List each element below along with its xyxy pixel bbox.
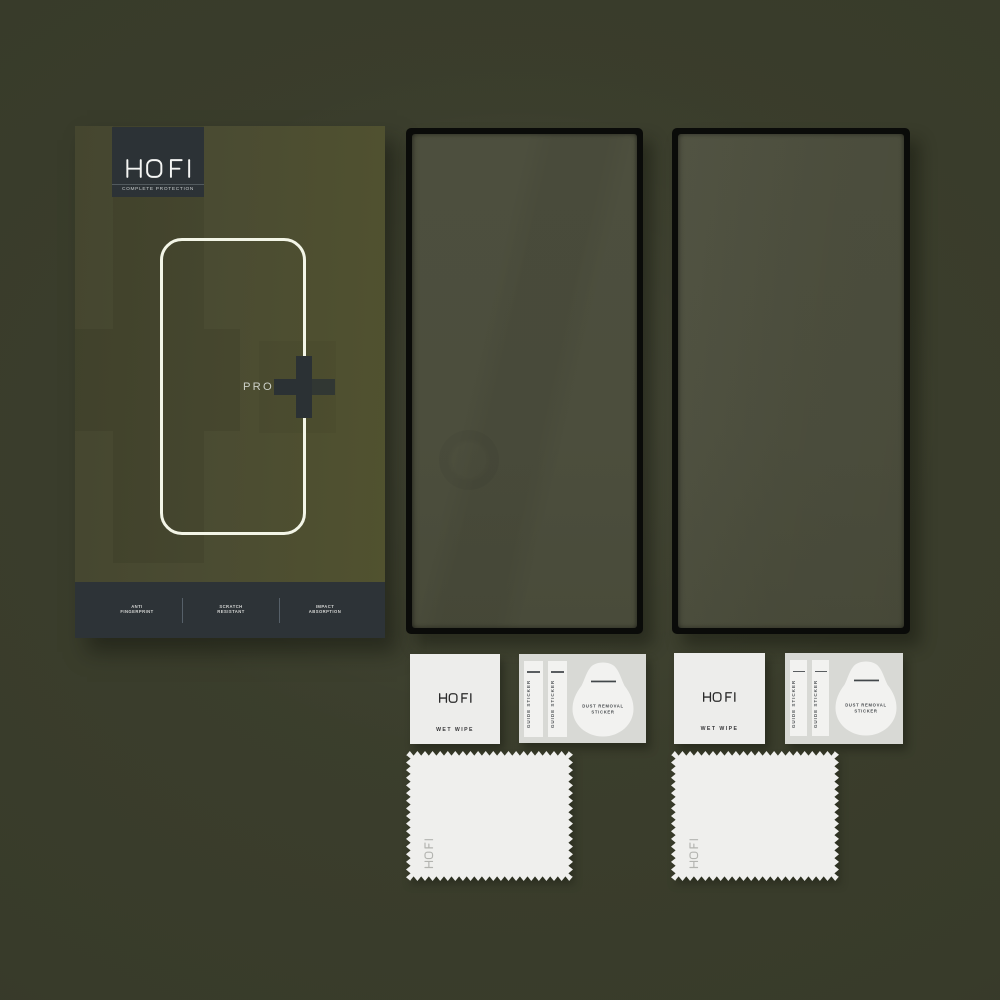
svg-text:STICKER: STICKER — [591, 710, 614, 715]
svg-text:STICKER: STICKER — [854, 709, 877, 714]
svg-text:DUST REMOVAL: DUST REMOVAL — [845, 703, 887, 708]
svg-text:DUST REMOVAL: DUST REMOVAL — [582, 704, 624, 709]
